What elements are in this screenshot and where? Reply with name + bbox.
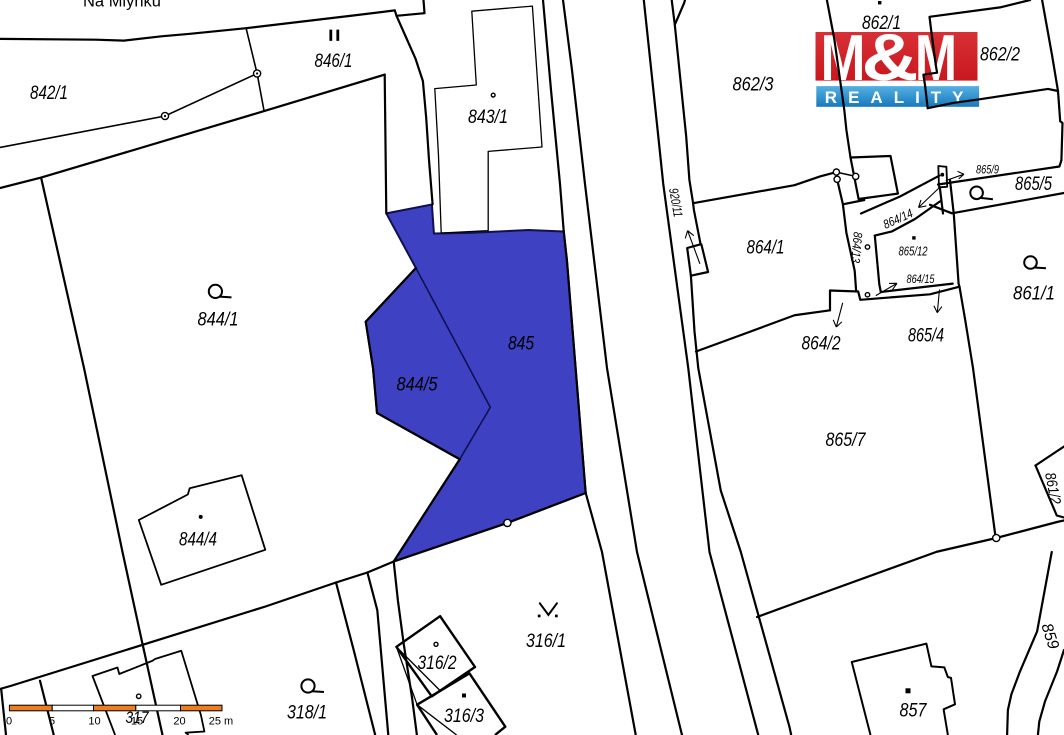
svg-text:20: 20 (173, 716, 185, 728)
svg-text:5: 5 (49, 716, 55, 728)
svg-text:865/9: 865/9 (976, 163, 999, 177)
svg-text:862/2: 862/2 (980, 45, 1020, 66)
svg-text:861/1: 861/1 (1013, 284, 1055, 305)
svg-text:846/1: 846/1 (315, 51, 353, 72)
svg-text:M: M (915, 21, 957, 94)
svg-text:862/3: 862/3 (733, 75, 774, 96)
svg-text:844/5: 844/5 (397, 375, 438, 396)
svg-text:864/2: 864/2 (802, 334, 841, 355)
svg-text:25 m: 25 m (209, 716, 233, 728)
svg-text:318/1: 318/1 (287, 703, 327, 724)
svg-text:865/4: 865/4 (908, 326, 944, 347)
svg-text:865/12: 865/12 (899, 245, 928, 259)
svg-text:844/1: 844/1 (198, 310, 239, 331)
svg-text:10: 10 (88, 716, 100, 728)
svg-text:316/3: 316/3 (444, 706, 484, 727)
svg-text:843/1: 843/1 (468, 107, 508, 128)
svg-text:316/1: 316/1 (526, 631, 566, 652)
svg-text:857: 857 (900, 701, 928, 722)
svg-text:865/7: 865/7 (826, 430, 867, 451)
svg-text:864/1: 864/1 (747, 238, 785, 259)
svg-text:Na Mlýnku: Na Mlýnku (83, 0, 161, 11)
svg-text:862/1: 862/1 (862, 13, 901, 34)
svg-text:864/13: 864/13 (848, 231, 865, 263)
svg-text:M: M (821, 21, 866, 94)
svg-text:0: 0 (6, 716, 12, 728)
svg-text:844/4: 844/4 (179, 530, 217, 551)
svg-text:864/15: 864/15 (907, 272, 935, 286)
svg-text:15: 15 (131, 716, 143, 728)
svg-text:316/2: 316/2 (418, 653, 457, 674)
svg-text:842/1: 842/1 (30, 83, 68, 104)
svg-text:865/5: 865/5 (1015, 174, 1052, 195)
svg-text:845: 845 (508, 334, 534, 355)
